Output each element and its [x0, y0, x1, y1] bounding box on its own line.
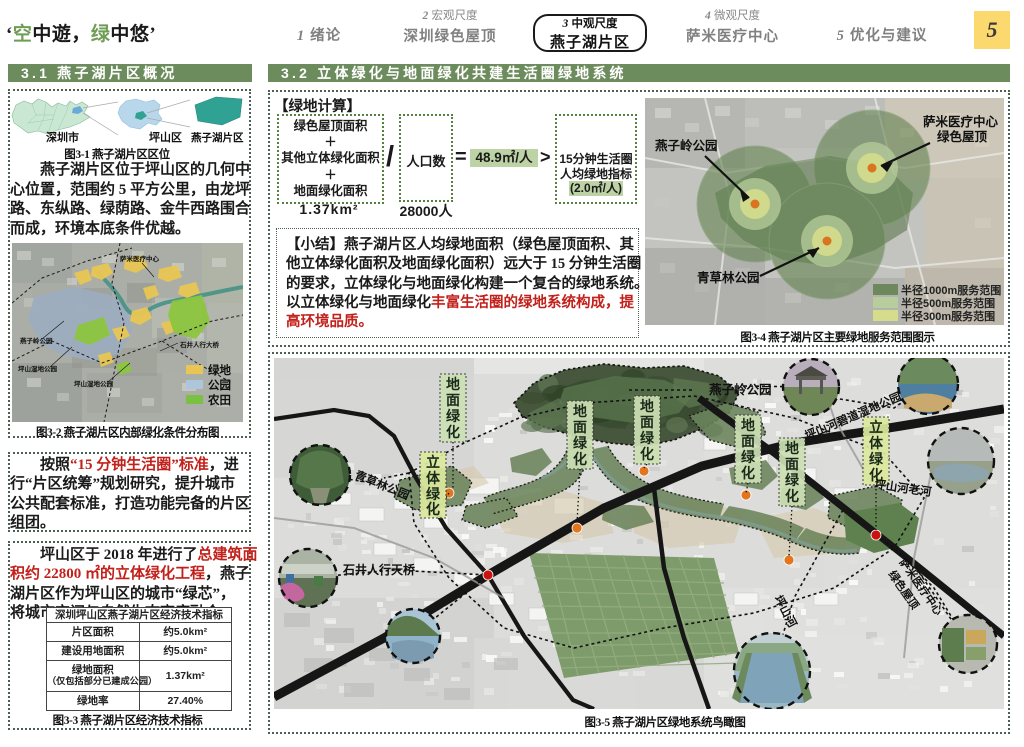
svg-text:石井人行天桥: 石井人行天桥 — [342, 562, 416, 577]
svg-text:面: 面 — [785, 456, 799, 472]
svg-text:燕子岭公园: 燕子岭公园 — [655, 138, 718, 153]
svg-text:地: 地 — [741, 417, 755, 433]
svg-text:深圳市: 深圳市 — [46, 130, 79, 144]
svg-text:化: 化 — [573, 451, 587, 467]
svg-text:面: 面 — [573, 419, 587, 435]
svg-text:化: 化 — [446, 424, 460, 440]
svg-text:农田: 农田 — [207, 393, 231, 407]
svg-text:面: 面 — [741, 433, 755, 449]
svg-text:萨米医疗中心: 萨米医疗中心 — [923, 114, 999, 129]
svg-text:化: 化 — [741, 465, 755, 481]
svg-text:绿: 绿 — [640, 430, 655, 446]
svg-text:燕子岭公园: 燕子岭公园 — [709, 382, 772, 397]
svg-text:萨米医疗中心: 萨米医疗中心 — [120, 254, 160, 263]
svg-text:半径300m服务范围: 半径300m服务范围 — [901, 309, 995, 323]
svg-text:化: 化 — [426, 501, 440, 517]
svg-text:立: 立 — [869, 419, 883, 435]
svg-text:立: 立 — [426, 454, 440, 470]
svg-text:地: 地 — [640, 398, 654, 414]
svg-text:绿: 绿 — [573, 435, 588, 451]
svg-text:体: 体 — [426, 470, 441, 486]
svg-text:绿: 绿 — [426, 486, 441, 502]
svg-text:绿色屋顶: 绿色屋顶 — [937, 129, 988, 144]
svg-text:燕子岭公园: 燕子岭公园 — [20, 336, 53, 345]
svg-text:燕子湖片区: 燕子湖片区 — [191, 131, 244, 144]
svg-text:化: 化 — [785, 488, 799, 504]
svg-text:绿地: 绿地 — [208, 363, 231, 377]
svg-text:绿: 绿 — [741, 449, 756, 465]
svg-text:坪山区: 坪山区 — [149, 130, 182, 144]
svg-text:石井人行大桥: 石井人行大桥 — [179, 340, 220, 349]
svg-text:地: 地 — [573, 403, 587, 419]
svg-text:绿: 绿 — [785, 472, 800, 488]
svg-text:地: 地 — [446, 376, 460, 392]
svg-text:坪山湿地公园: 坪山湿地公园 — [74, 379, 114, 388]
svg-text:绿: 绿 — [446, 408, 461, 424]
svg-text:化: 化 — [640, 446, 654, 462]
svg-text:地: 地 — [785, 440, 799, 456]
svg-text:公园: 公园 — [208, 378, 231, 392]
svg-text:面: 面 — [446, 392, 460, 408]
svg-text:半径1000m服务范围: 半径1000m服务范围 — [901, 283, 1001, 297]
svg-text:青草林公园: 青草林公园 — [697, 270, 760, 285]
svg-text:半径500m服务范围: 半径500m服务范围 — [901, 296, 995, 310]
svg-text:绿: 绿 — [869, 451, 884, 467]
svg-text:面: 面 — [640, 414, 654, 430]
svg-text:体: 体 — [869, 435, 884, 451]
